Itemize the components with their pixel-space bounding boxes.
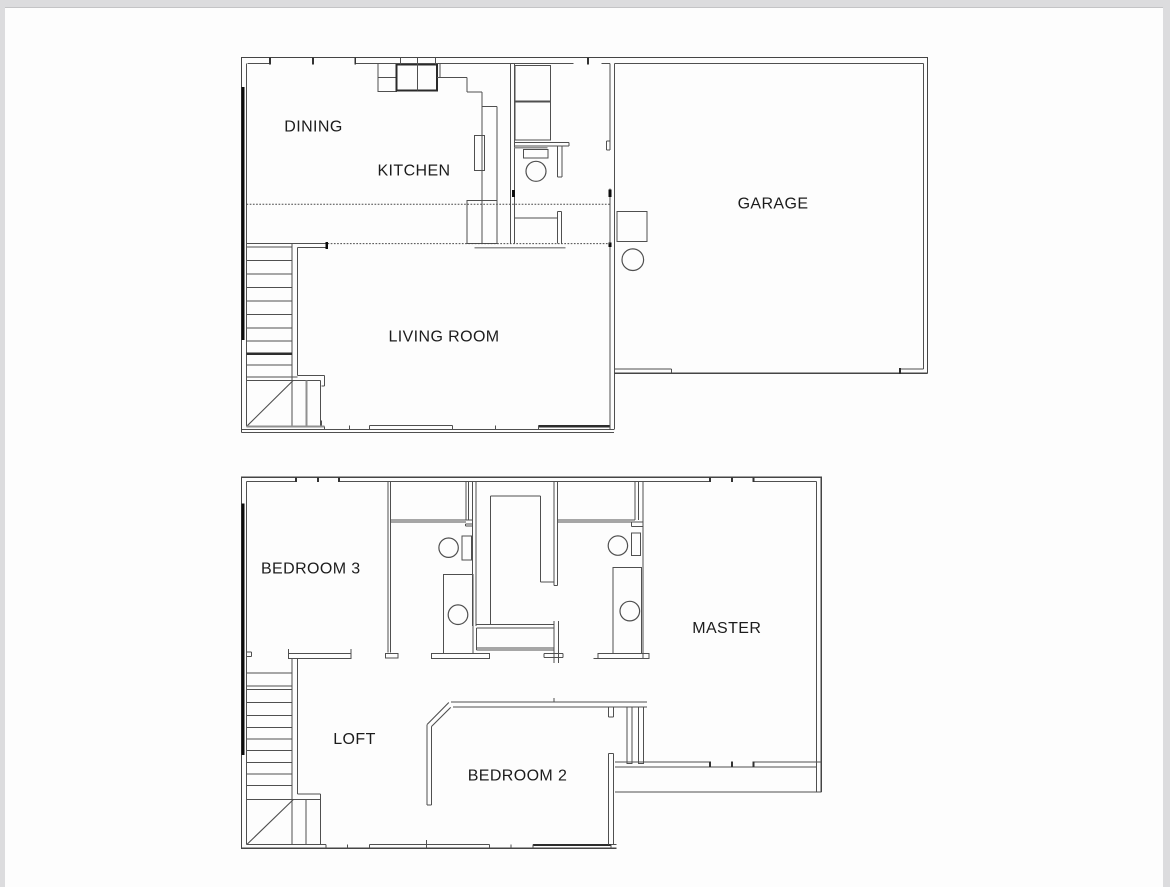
svg-text:LOFT: LOFT (333, 731, 376, 748)
svg-text:DINING: DINING (284, 119, 342, 136)
svg-text:BEDROOM 2: BEDROOM 2 (468, 768, 568, 785)
svg-text:KITCHEN: KITCHEN (377, 163, 450, 180)
svg-text:BEDROOM 3: BEDROOM 3 (261, 561, 361, 578)
svg-text:LIVING ROOM: LIVING ROOM (388, 329, 499, 346)
svg-text:MASTER: MASTER (692, 620, 761, 637)
svg-text:GARAGE: GARAGE (738, 196, 809, 213)
